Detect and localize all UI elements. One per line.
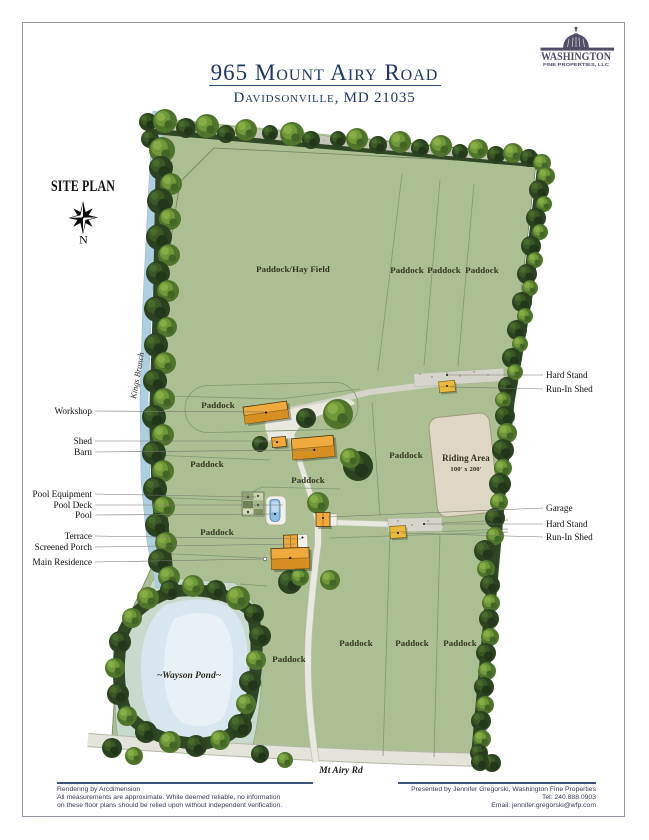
svg-text:Paddock: Paddock <box>465 265 498 275</box>
svg-text:~Wayson Pond~: ~Wayson Pond~ <box>157 671 222 681</box>
svg-text:Screened Porch: Screened Porch <box>35 542 93 552</box>
svg-text:Barn: Barn <box>74 447 92 457</box>
svg-text:Paddock: Paddock <box>427 265 460 275</box>
svg-text:Paddock/Hay Field: Paddock/Hay Field <box>256 264 330 274</box>
svg-text:Pool Equipment: Pool Equipment <box>33 489 93 499</box>
svg-text:Run-In Shed: Run-In Shed <box>546 384 593 394</box>
svg-text:Hard Stand: Hard Stand <box>546 370 588 380</box>
svg-text:Main Residence: Main Residence <box>33 557 92 567</box>
svg-text:Paddock: Paddock <box>395 638 428 648</box>
svg-text:Paddock: Paddock <box>339 638 372 648</box>
svg-text:Paddock: Paddock <box>200 527 233 537</box>
svg-text:Riding Area: Riding Area <box>442 453 490 463</box>
svg-text:Pool: Pool <box>75 510 92 520</box>
svg-text:Paddock: Paddock <box>272 654 305 664</box>
svg-text:Hard Stand: Hard Stand <box>546 519 588 529</box>
svg-text:Paddock: Paddock <box>443 638 476 648</box>
svg-text:Garage: Garage <box>546 503 573 513</box>
svg-text:Paddock: Paddock <box>390 265 423 275</box>
svg-text:Workshop: Workshop <box>54 406 92 416</box>
svg-text:100' x 200': 100' x 200' <box>450 466 481 473</box>
svg-text:Paddock: Paddock <box>201 400 234 410</box>
svg-text:Paddock: Paddock <box>190 459 223 469</box>
svg-text:Run-In Shed: Run-In Shed <box>546 532 593 542</box>
svg-text:Pool Deck: Pool Deck <box>53 500 92 510</box>
svg-text:Terrace: Terrace <box>65 531 92 541</box>
svg-text:Mt Airy Rd: Mt Airy Rd <box>318 766 363 776</box>
svg-text:Paddock: Paddock <box>389 450 422 460</box>
svg-text:Shed: Shed <box>74 436 93 446</box>
svg-text:Paddock: Paddock <box>291 475 324 485</box>
